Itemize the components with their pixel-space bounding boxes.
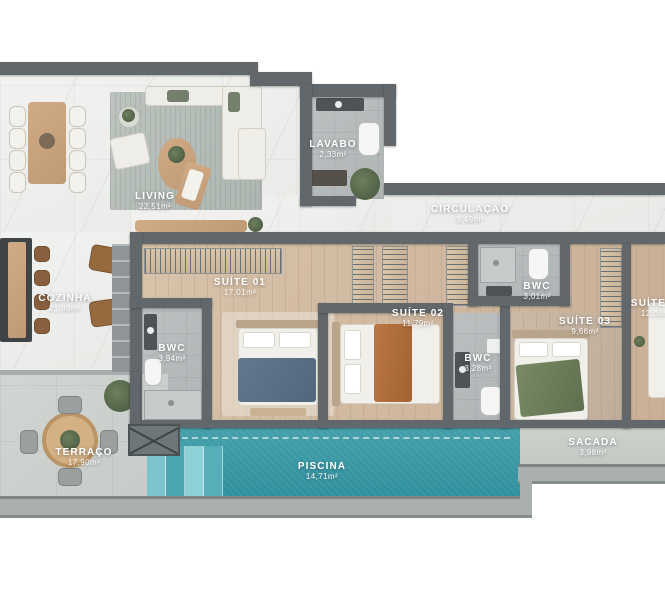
wall-segment xyxy=(130,298,212,308)
wall-segment xyxy=(300,84,396,97)
room-label-bwc-suite02: BWC 3,28m² xyxy=(464,353,491,373)
bed-suite02 xyxy=(332,322,442,406)
room-name: BWC xyxy=(158,343,185,354)
room-area: 9,66m² xyxy=(571,327,598,336)
terrace-chair xyxy=(58,396,82,414)
room-label-lavabo: LAVABO 2,33m² xyxy=(309,139,356,159)
room-area: 17,01m² xyxy=(224,288,256,297)
pool-lane-dashed-line xyxy=(182,437,510,439)
room-area: 2,33m² xyxy=(319,150,346,159)
room-label-circulacao: CIRCULAÇÃO 9,49m² xyxy=(431,204,509,224)
closet-rail xyxy=(382,246,408,306)
plant-icon xyxy=(122,109,135,122)
room-label-cozinha: COZINHA 21,86m² xyxy=(38,293,91,313)
plant-icon xyxy=(168,146,185,163)
room-area: 12,06m² xyxy=(641,309,665,318)
wall-segment xyxy=(622,244,631,428)
bar-stool xyxy=(34,318,50,334)
room-label-suite02: SUÍTE 02 11,79m² xyxy=(392,308,444,328)
room-name: SUÍTE 03 xyxy=(559,316,611,327)
sofa-cushion xyxy=(228,92,240,112)
room-name: CIRCULAÇÃO xyxy=(431,204,509,215)
sink-icon xyxy=(147,327,154,334)
room-name: TERRAÇO xyxy=(55,447,112,458)
room-label-suite01: SUÍTE 01 17,01m² xyxy=(214,277,266,297)
wall-segment xyxy=(202,298,212,428)
room-name: LIVING xyxy=(135,191,175,202)
room-area: 14,71m² xyxy=(306,472,338,481)
room-label-living: LIVING 22,51m² xyxy=(135,191,175,211)
dining-chair xyxy=(69,150,86,171)
toilet-icon xyxy=(528,248,549,280)
wall-segment xyxy=(130,232,665,244)
room-name: LAVABO xyxy=(309,139,356,150)
room-area: 21,86m² xyxy=(49,304,81,313)
room-label-suite04: SUÍTE 04 12,06m² xyxy=(631,298,665,318)
room-name: COZINHA xyxy=(38,293,91,304)
balcony-railing-right xyxy=(518,464,665,484)
tv-console xyxy=(135,220,247,232)
shower-drain-icon xyxy=(493,260,499,266)
room-area: 3,28m² xyxy=(464,364,491,373)
floor-plan: LIVING 22,51m² LAVABO 2,33m² CIRCULAÇÃO … xyxy=(0,0,665,605)
wall-segment xyxy=(130,420,665,428)
sink-icon xyxy=(335,101,342,108)
wall-segment xyxy=(318,303,328,428)
plant-icon xyxy=(634,336,645,347)
balcony-railing xyxy=(0,496,532,518)
room-area: 3,94m² xyxy=(158,354,185,363)
room-label-bwc-suite03: BWC 3,01m² xyxy=(523,281,550,301)
sofa-corner-seat xyxy=(238,128,266,180)
room-name: PISCINA xyxy=(298,461,346,472)
room-area: 22,51m² xyxy=(139,202,171,211)
closet-rail xyxy=(352,246,374,306)
bed-suite03 xyxy=(512,330,590,422)
table-centerpiece xyxy=(39,133,55,149)
pantry-cabinet xyxy=(112,244,132,372)
room-name: SACADA xyxy=(568,437,617,448)
room-label-sacada: SACADA 3,98m² xyxy=(568,437,617,457)
closet-rail xyxy=(144,248,282,274)
room-name: SUÍTE 04 xyxy=(631,298,665,309)
room-label-piscina: PISCINA 14,71m² xyxy=(298,461,346,481)
wall-segment xyxy=(300,196,356,206)
wall-segment xyxy=(384,84,396,146)
toilet-icon xyxy=(358,122,380,156)
plant-icon xyxy=(248,217,263,232)
wall-segment xyxy=(443,303,453,428)
room-label-suite03: SUÍTE 03 9,66m² xyxy=(559,316,611,336)
wall-segment xyxy=(130,372,140,426)
shower-drain-icon xyxy=(168,400,174,406)
dining-chair xyxy=(9,128,26,149)
bar-stool xyxy=(34,246,50,262)
room-label-terraco: TERRAÇO 17,90m² xyxy=(55,447,112,467)
wall-segment xyxy=(500,303,510,428)
room-area: 17,90m² xyxy=(68,458,100,467)
room-name: SUÍTE 02 xyxy=(392,308,444,319)
room-name: SUÍTE 01 xyxy=(214,277,266,288)
room-area: 3,98m² xyxy=(579,448,606,457)
railing-connector xyxy=(520,464,532,518)
terrace-chair xyxy=(20,430,38,454)
dining-chair xyxy=(9,106,26,127)
room-area: 3,01m² xyxy=(523,292,550,301)
dining-chair xyxy=(69,172,86,193)
kitchen-island-top xyxy=(8,242,26,338)
room-name: BWC xyxy=(523,281,550,292)
pool-equipment-block xyxy=(128,424,180,456)
wall-segment xyxy=(0,62,258,75)
room-label-bwc-suite01: BWC 3,94m² xyxy=(158,343,185,363)
sofa-cushion xyxy=(167,90,189,102)
room-name: BWC xyxy=(464,353,491,364)
bar-stool xyxy=(34,270,50,286)
dining-chair xyxy=(69,128,86,149)
bed-suite01 xyxy=(236,320,320,416)
dining-chair xyxy=(9,150,26,171)
wall-segment xyxy=(384,183,665,195)
dining-chair xyxy=(69,106,86,127)
wall-segment xyxy=(468,296,570,306)
vanity-sink xyxy=(486,286,512,296)
room-area: 9,49m² xyxy=(456,215,483,224)
dining-chair xyxy=(9,172,26,193)
room-area: 11,79m² xyxy=(402,319,434,328)
toilet-icon xyxy=(480,386,502,416)
terrace-chair xyxy=(58,468,82,486)
